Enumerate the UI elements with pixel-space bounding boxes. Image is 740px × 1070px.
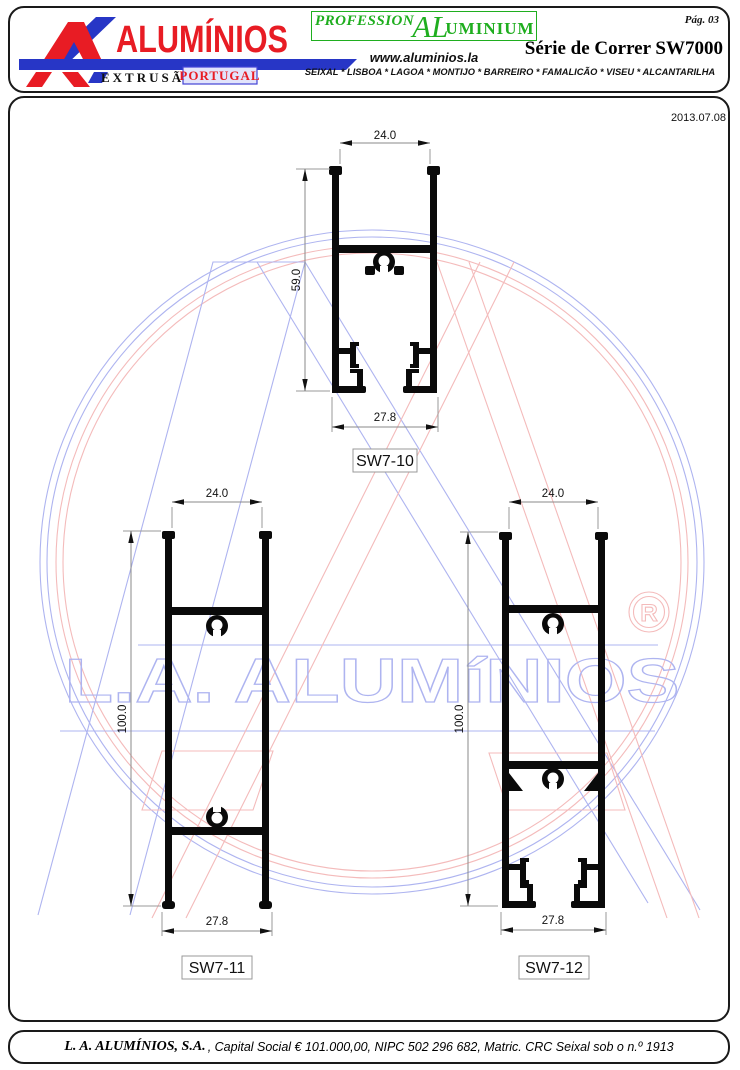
profile-sw7-12: 24.0 100.0 27.8 SW7-12 [454,488,608,979]
dim-height-sw7-12: 100.0 [454,532,498,906]
svg-text:100.0: 100.0 [117,705,129,734]
dim-width-bottom-sw7-10: 27.8 [332,397,438,432]
professional-segment-2: AL [412,14,448,40]
dim-width-top-sw7-10: 24.0 [340,130,430,164]
portugal-badge-label: PORTUGAL [179,68,260,83]
svg-text:59.0: 59.0 [291,269,303,291]
series-title: Série de Correr SW7000 [525,38,723,60]
dim-width-top-sw7-12: 24.0 [509,488,598,529]
page-number: Pág. 03 [685,14,719,26]
svg-text:24.0: 24.0 [542,488,564,500]
brand-wordmark: ALUMÍNIOS [116,17,288,61]
website-label: www.aluminios.la [311,50,537,65]
technical-drawing: L.A. ALUMíNIOS R 2013.07.08 [10,98,728,1020]
profile-label-sw7-12: SW7-12 [519,956,589,979]
profile-sw7-10-shape [329,166,440,393]
professional-aluminium-badge: PROFESSION AL UMINIUM [311,11,537,41]
svg-text:SW7-12: SW7-12 [525,960,583,977]
dim-width-top-sw7-11: 24.0 [172,488,262,528]
datasheet-page: { "header": { "page_number": "Pág. 03", … [0,0,740,1070]
drawing-date: 2013.07.08 [671,112,726,124]
locations-line: SEIXAL * LISBOA * LAGOA * MONTIJO * BARR… [294,67,726,77]
dim-height-sw7-10: 59.0 [291,169,330,391]
profile-sw7-12-shape [499,532,608,908]
professional-segment-1: PROFESSION [315,13,414,30]
profile-label-sw7-11: SW7-11 [182,956,252,979]
dim-width-bottom-sw7-11: 27.8 [162,912,272,936]
svg-text:SW7-10: SW7-10 [356,453,414,470]
profile-sw7-11-shape [162,531,272,909]
header: ALUMÍNIOS EXTRUSÃO PORTUGAL PROFESSION A… [8,6,730,93]
svg-text:27.8: 27.8 [206,916,228,928]
profile-sw7-10: 24.0 59.0 27.8 SW7-10 [291,130,440,472]
svg-text:R: R [640,600,657,627]
svg-text:24.0: 24.0 [374,130,396,142]
dim-height-sw7-11: 100.0 [117,531,161,906]
svg-text:24.0: 24.0 [206,488,228,500]
drawing-area: L.A. ALUMíNIOS R 2013.07.08 [8,96,730,1022]
svg-text:27.8: 27.8 [542,915,564,927]
footer: L. A. ALUMÍNIOS, S.A. , Capital Social €… [8,1030,730,1064]
profile-sw7-11: 24.0 100.0 27.8 SW7-11 [117,488,272,979]
dim-width-bottom-sw7-12: 27.8 [501,912,606,935]
registered-trademark-icon: R [629,592,669,632]
svg-text:SW7-11: SW7-11 [189,960,246,977]
svg-text:100.0: 100.0 [454,705,466,734]
footer-company-details: , Capital Social € 101.000,00, NIPC 502 … [208,1040,674,1054]
svg-text:27.8: 27.8 [374,412,396,424]
footer-company-name: L. A. ALUMÍNIOS, S.A. [64,1039,205,1055]
professional-segment-3: UMINIUM [445,19,534,39]
watermark-text: L.A. ALUMíNIOS [65,647,680,716]
portugal-badge: PORTUGAL [179,67,260,84]
profile-label-sw7-10: SW7-10 [353,449,417,472]
